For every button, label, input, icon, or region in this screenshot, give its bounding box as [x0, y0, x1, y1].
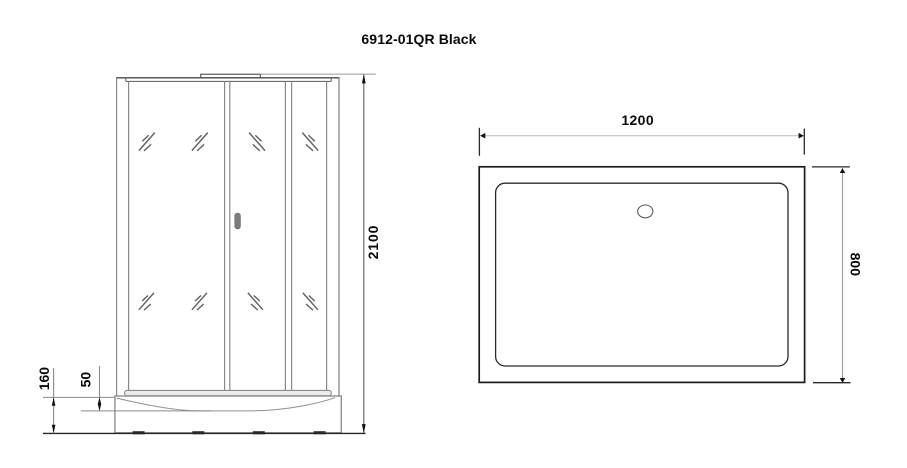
svg-text:800: 800	[847, 253, 863, 277]
svg-text:1200: 1200	[621, 112, 654, 128]
svg-text:2100: 2100	[365, 225, 381, 260]
svg-text:160: 160	[36, 367, 52, 391]
svg-text:50: 50	[78, 372, 94, 388]
svg-text:6912-01QR Black: 6912-01QR Black	[361, 31, 476, 47]
